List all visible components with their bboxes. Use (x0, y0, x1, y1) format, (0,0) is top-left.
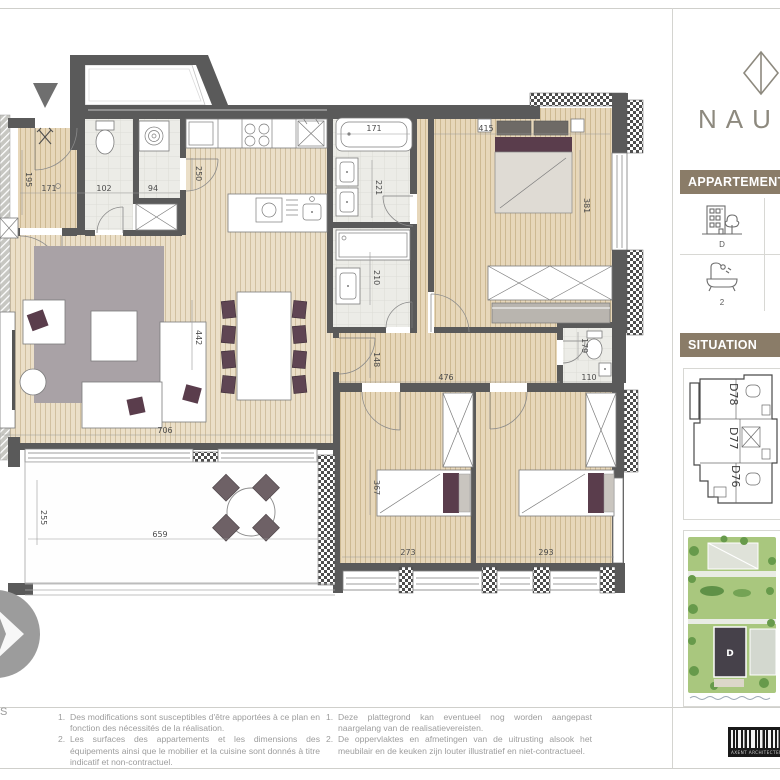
dim-terrace-width: 659 (152, 530, 167, 539)
dim-wc2-width: 110 (581, 373, 596, 382)
brochure-page: .wl{fill:#5a5a5a}.fw{fill:#fff;stroke:#7… (0, 0, 780, 780)
logo-text: NAU (698, 104, 780, 135)
footer-nl-item-1: 1. Deze plattegrond kan eventueel nog wo… (326, 712, 592, 734)
dim-living-depth: 442 (194, 330, 203, 345)
situation-map: D78 D77 D76 (683, 368, 780, 520)
situation-unit-d78: D78 (727, 383, 740, 405)
side-table (20, 369, 46, 395)
footer-disclaimer-fr: 1. Des modifications sont susceptibles d… (58, 712, 320, 768)
apartment-header-bar: APPARTEMENT D (680, 170, 780, 194)
upper-balcony (85, 65, 205, 105)
footer-disclaimer-nl: 1. Deze plattegrond kan eventueel nog wo… (326, 712, 592, 757)
info-cell-building: D (680, 198, 765, 254)
footer-nl-item-2: 2. De oppervlaktes en afmetingen van de … (326, 734, 592, 756)
dim-hallway-length: 476 (438, 373, 453, 382)
site-plan: D (683, 530, 780, 707)
north-triangle (33, 83, 58, 108)
dining-table (237, 292, 291, 400)
dim-living-width: 706 (157, 426, 172, 435)
info-bathtub-caption: 2 (720, 298, 724, 307)
situation-unit-d77: D77 (727, 427, 740, 449)
dim-hallway-width: 148 (372, 352, 381, 367)
dim-bath2-depth: 210 (372, 270, 381, 285)
bed (519, 470, 614, 516)
bathtub-icon (699, 259, 745, 297)
dim-hall-width: 171 (41, 184, 56, 193)
dim-bed2-depth: 367 (372, 480, 381, 495)
situation-header-bar: SITUATION (680, 333, 780, 357)
dim-wc2-depth: 179 (580, 338, 589, 353)
footer-fr-item-2: 2. Les surfaces des appartements et les … (58, 734, 320, 768)
bed (377, 470, 471, 516)
dim-terrace-depth: 255 (39, 510, 48, 525)
situation-unit-d76: D76 (729, 465, 742, 487)
dim-master-depth: 381 (582, 198, 591, 213)
dim-bed3-width: 293 (538, 548, 553, 557)
dim-master-width: 415 (478, 124, 493, 133)
dim-bed2-width: 273 (400, 548, 415, 557)
coffee-table (91, 311, 137, 361)
building-tree-icon (699, 203, 745, 239)
dim-wc: 102 (96, 184, 111, 193)
info-cell-bathroom: 2 (680, 255, 765, 311)
architect-name: AXENT ARCHITECTEN (731, 750, 780, 755)
apartment-info-grid: D 2 (680, 198, 780, 310)
dim-bath1-depth: 221 (374, 180, 383, 195)
logo-icon (742, 50, 780, 96)
compass-icon (0, 590, 40, 678)
footer-fr-item-1: 1. Des modifications sont susceptibles d… (58, 712, 320, 734)
dim-kitchen-door: 250 (194, 166, 203, 181)
architect-barcode: AXENT ARCHITECTEN (728, 727, 780, 757)
compass-letter: S (0, 706, 7, 718)
terrace (25, 462, 335, 595)
floor-plan: .wl{fill:#5a5a5a}.fw{fill:#fff;stroke:#7… (0, 0, 780, 780)
info-building-caption: D (719, 240, 725, 249)
siteplan-building-label: D (726, 649, 733, 659)
dim-laundry: 94 (148, 184, 158, 193)
dim-hall-height: 195 (24, 172, 33, 187)
kitchen-island (228, 194, 327, 232)
dim-bathtub: 171 (366, 124, 381, 133)
master-wardrobe (488, 266, 612, 300)
